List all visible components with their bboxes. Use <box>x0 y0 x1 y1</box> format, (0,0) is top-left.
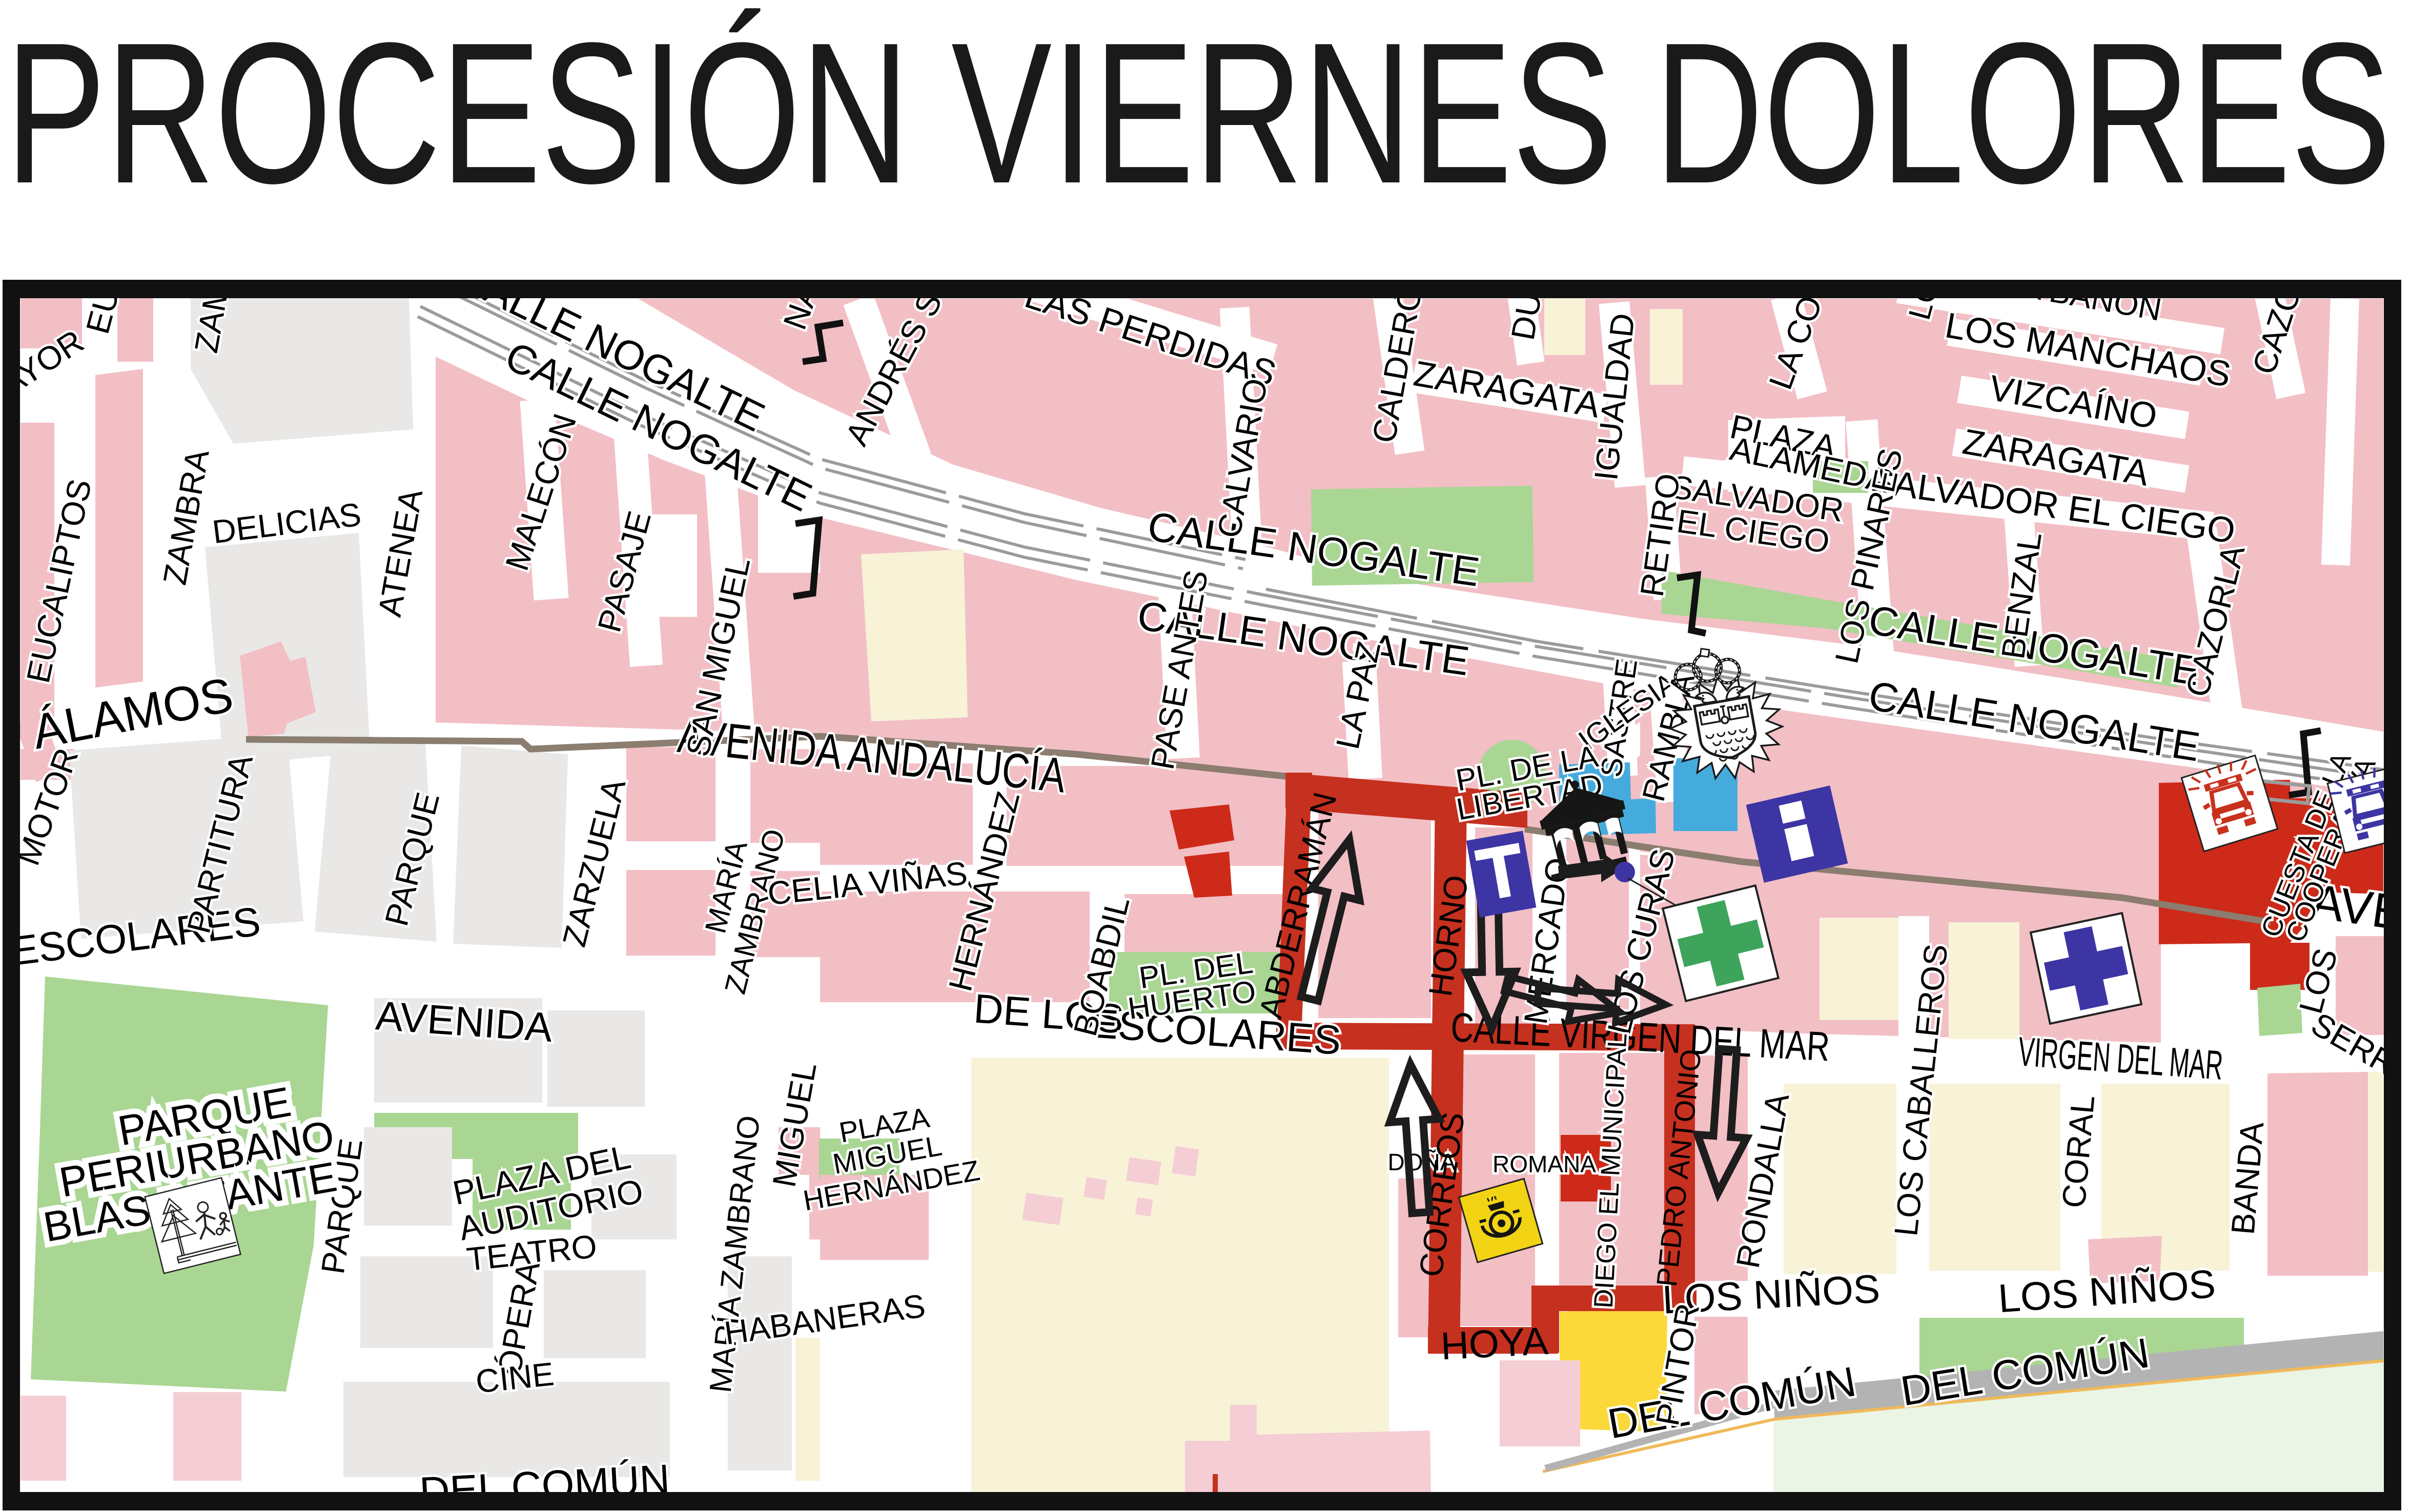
svg-text:HOYA: HOYA <box>1440 1319 1549 1369</box>
svg-text:DE: DE <box>972 985 1032 1035</box>
svg-text:PROCESIÓN VIERNES DOLORES: PROCESIÓN VIERNES DOLORES <box>6 1 2391 225</box>
svg-text:ROMANA: ROMANA <box>1493 1151 1596 1177</box>
